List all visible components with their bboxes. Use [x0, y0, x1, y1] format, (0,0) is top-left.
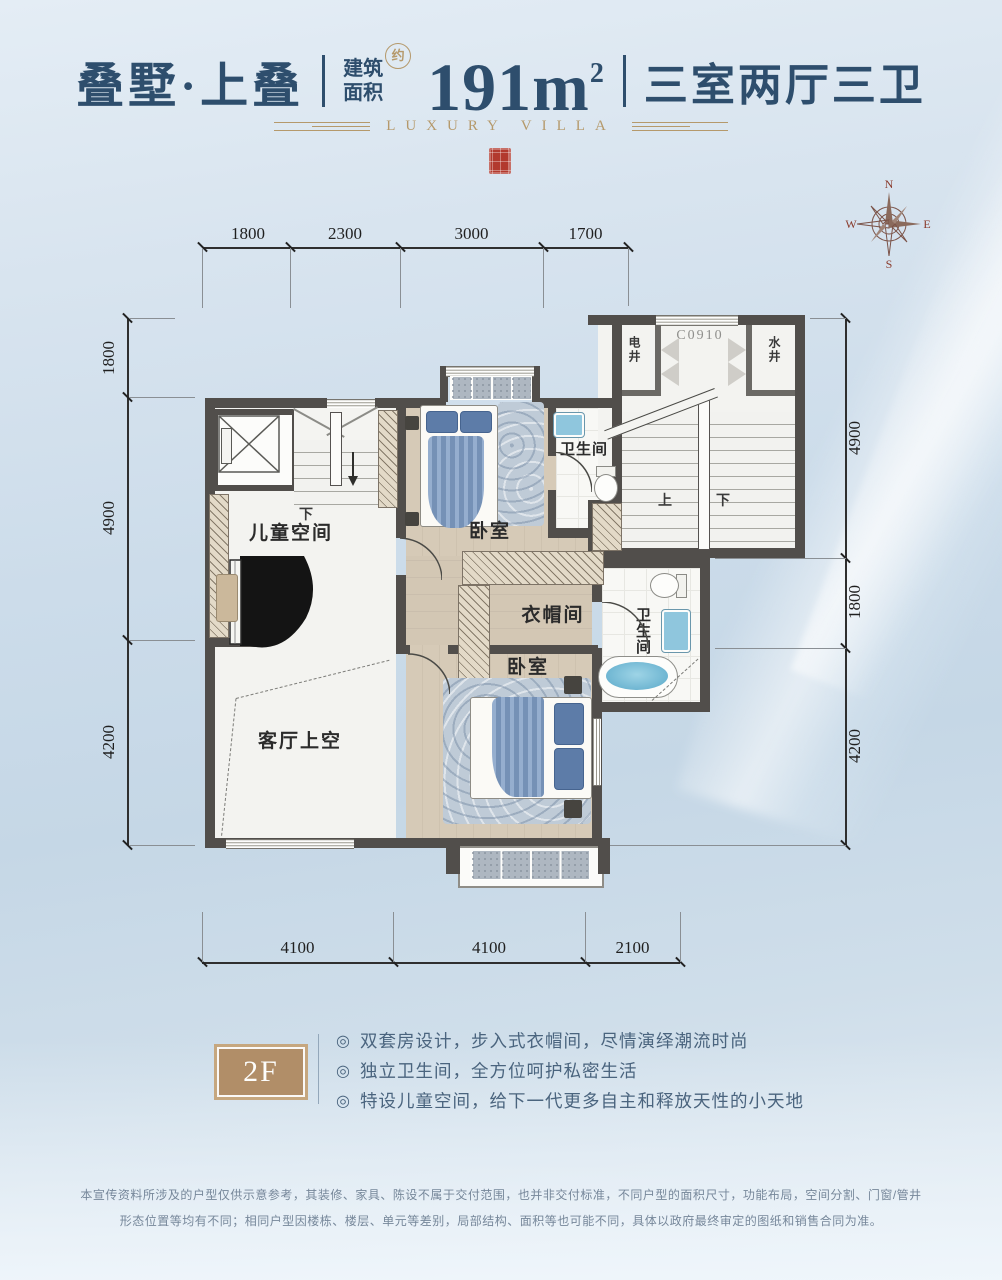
shaft-door-icon [728, 362, 746, 386]
dim-right-3: 4200 [845, 704, 865, 788]
dim-chain-bottom [202, 962, 680, 964]
door-arc [602, 602, 648, 648]
unit-title: 叠墅·上叠 [76, 46, 304, 116]
floor-badge: 2F [214, 1044, 308, 1100]
feature-text: 特设儿童空间，给下一代更多自主和释放天性的小天地 [360, 1088, 804, 1113]
stair-down-label: 下 [706, 490, 740, 510]
compass-e: E [923, 217, 930, 231]
stair-rail [698, 400, 710, 550]
stair-arrow-head [348, 476, 358, 486]
dim-bottom-1: 4100 [202, 938, 393, 958]
rug [498, 402, 544, 526]
window [593, 718, 601, 786]
dim-top-2: 2300 [290, 224, 400, 244]
approx-badge: 约 [385, 43, 411, 69]
dim-right-2: 1800 [845, 560, 865, 644]
sink [554, 413, 584, 437]
door-arc [408, 652, 450, 694]
sink [662, 610, 690, 652]
room-label-children: 儿童空间 [228, 518, 354, 545]
window [226, 839, 354, 849]
stair-arrow [352, 452, 354, 478]
dim-bottom-2: 4100 [393, 938, 585, 958]
bathtub-water [606, 662, 668, 690]
feature-item: ◎ 独立卫生间，全方位呵护私密生活 [336, 1058, 637, 1083]
area-value: 191m2 [427, 44, 605, 117]
wardrobe [462, 551, 604, 585]
ornament-right [632, 122, 728, 131]
stair-up-label: 上 [648, 490, 682, 510]
bed-blanket [428, 436, 484, 528]
dim-left-3: 4200 [99, 700, 119, 784]
dim-top-1: 1800 [206, 224, 290, 244]
area-superscript: 2 [590, 58, 605, 89]
wardrobe [378, 410, 398, 508]
elevator-counterweight [221, 428, 232, 464]
balcony-cushion [470, 850, 590, 880]
red-seal [489, 148, 511, 174]
dim-left-1: 1800 [99, 316, 119, 400]
bullet-icon: ◎ [336, 1031, 351, 1051]
compass-rose: N S E W [845, 178, 933, 270]
area-label-top: 建筑 [343, 57, 383, 81]
disclaimer-line-1: 本宣传资料所涉及的户型仅供示意参考，其装修、家具、陈设不属于交付范围，也并非交付… [60, 1182, 942, 1208]
wall [622, 390, 661, 396]
wall [592, 558, 710, 568]
window-c0910 [656, 315, 738, 326]
shaft-door-icon [661, 338, 679, 362]
wall [746, 390, 795, 396]
wall [598, 838, 610, 874]
piano-bench [216, 574, 238, 622]
pillow [554, 748, 584, 790]
dim-bottom-3: 2100 [585, 938, 680, 958]
electric-shaft-label: 电井 [626, 336, 643, 364]
feature-text: 独立卫生间，全方位呵护私密生活 [360, 1058, 638, 1083]
wall [746, 325, 752, 395]
area-number: 191m [427, 49, 590, 125]
wall [538, 398, 616, 408]
flyer-page: 叠墅·上叠 建筑 面积 约 191m2 三室两厅三卫 LUXURY VILLA … [0, 0, 1002, 1280]
grand-piano [226, 554, 320, 658]
footer-divider [318, 1034, 319, 1104]
room-label-bedroom2: 卧室 [478, 652, 578, 679]
pillow [426, 411, 458, 433]
wall [446, 838, 460, 874]
nightstand [564, 800, 582, 818]
compass-n: N [885, 178, 894, 191]
title-divider [623, 55, 626, 107]
feature-item: ◎ 特设儿童空间，给下一代更多自主和释放天性的小天地 [336, 1088, 804, 1113]
nightstand [405, 512, 419, 526]
bay-window-cushion [450, 376, 532, 400]
room-layout: 三室两厅三卫 [644, 49, 926, 113]
subtitle-row: LUXURY VILLA [0, 118, 1002, 135]
dim-top-3: 3000 [400, 224, 543, 244]
door-arc [552, 452, 592, 492]
pillow [554, 703, 584, 745]
wall [592, 702, 710, 712]
area-label: 建筑 面积 约 [343, 57, 409, 105]
wardrobe [592, 503, 622, 551]
dim-left-2: 4900 [99, 476, 119, 560]
feature-item: ◎ 双套房设计，步入式衣帽间，尽情演绎潮流时尚 [336, 1028, 748, 1053]
dim-top-4: 1700 [543, 224, 628, 244]
nightstand [405, 416, 419, 430]
water-shaft-label: 水井 [766, 336, 783, 364]
wall [700, 558, 710, 712]
door-arc [398, 538, 442, 580]
header: 叠墅·上叠 建筑 面积 约 191m2 三室两厅三卫 [0, 44, 1002, 117]
shaft-door-icon [661, 362, 679, 386]
dim-right-1: 4900 [845, 396, 865, 480]
subtitle-text: LUXURY VILLA [386, 118, 616, 135]
pillow [460, 411, 492, 433]
wall [205, 398, 327, 408]
stair-rail [330, 412, 342, 486]
feature-text: 双套房设计，步入式衣帽间，尽情演绎潮流时尚 [360, 1028, 749, 1053]
wall [795, 315, 805, 558]
area-label-bottom: 面积 [343, 81, 383, 105]
wall [588, 315, 656, 325]
toilet [594, 474, 618, 502]
shaft-door-icon [728, 338, 746, 362]
title-divider [322, 55, 325, 107]
room-label-living-void: 客厅上空 [235, 726, 365, 753]
bed-blanket [492, 697, 544, 797]
bullet-icon: ◎ [336, 1091, 351, 1111]
wall [396, 575, 406, 648]
disclaimer-line-2: 形态位置等均有不同；相同户型因楼栋、楼层、单元等差别，局部结构、面积等也可能不同… [60, 1208, 942, 1234]
room-label-bedroom1: 卧室 [440, 516, 540, 543]
room-label-cloakroom: 衣帽间 [498, 600, 608, 627]
bullet-icon: ◎ [336, 1061, 351, 1081]
compass-w: W [845, 217, 857, 231]
ornament-left [274, 122, 370, 131]
toilet [650, 573, 679, 598]
compass-s: S [886, 257, 893, 270]
dim-chain-top [202, 247, 628, 249]
